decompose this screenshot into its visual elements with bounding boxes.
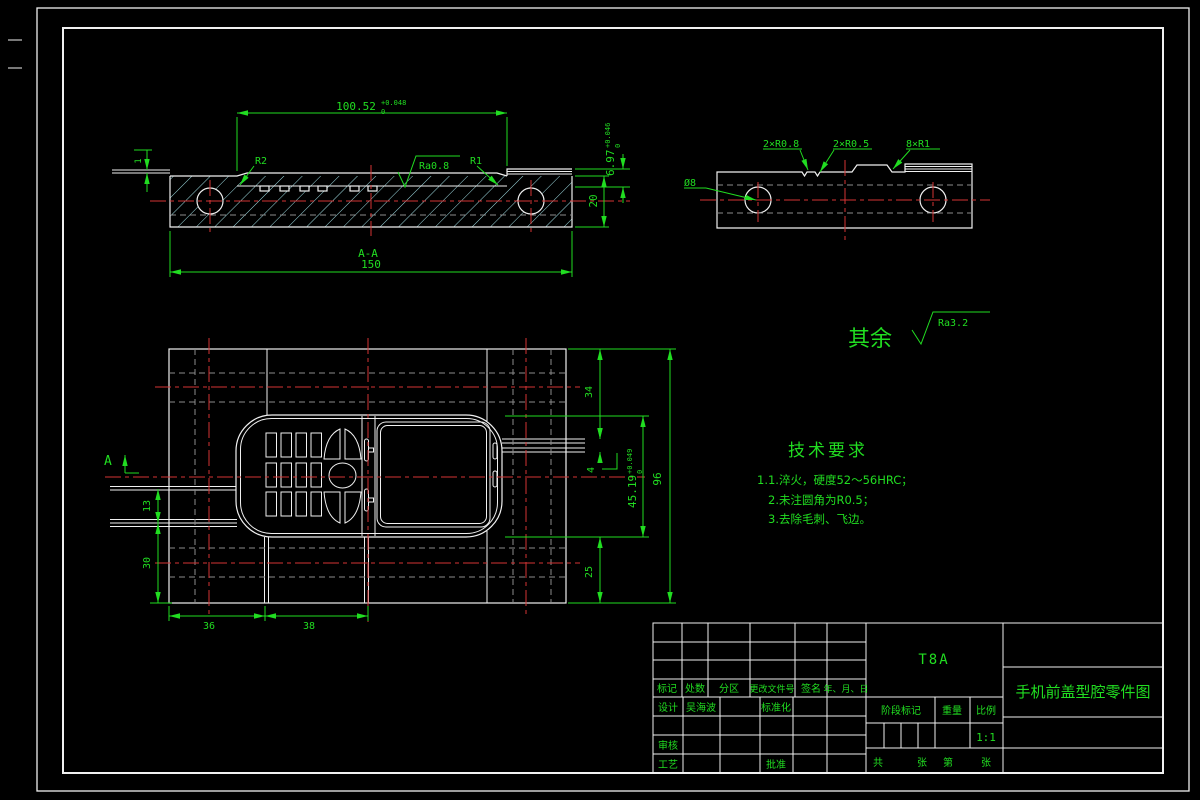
col-doc: 更改文件号 [749, 683, 794, 695]
col-mark: 标记 [657, 683, 677, 695]
margin-centering-marks [8, 40, 22, 68]
surface-note-value: Ra3.2 [938, 318, 968, 329]
approve-label: 批准 [766, 758, 786, 771]
plan-left-runners [110, 487, 237, 527]
scale-label: 比例 [976, 704, 996, 717]
side-view: Ø8 2×R0.8 2×R0.5 8×R1 [684, 139, 990, 240]
outer-border [37, 8, 1189, 791]
tech-item-1: 1.1.淬火，硬度52～56HRC； [757, 473, 913, 487]
side-ledge-lines [905, 167, 972, 172]
label-fillet-left: R2 [255, 156, 267, 167]
dim-cavity-height-tol-up: +0.049 [626, 449, 634, 474]
dim-step: 1 [134, 158, 144, 163]
tech-item-3: 3.去除毛刺、飞边。 [768, 512, 871, 526]
section-arrow-label: A [104, 454, 112, 469]
standard-label: 标准化 [761, 701, 791, 714]
review-label: 审核 [658, 739, 678, 752]
drawing-canvas: 100.52 +0.048 0 150 A-A 20 6.97 +0.046 0 [0, 0, 1200, 800]
dim-height: 20 [587, 194, 600, 207]
label-notch2: 2×R0.5 [833, 139, 869, 150]
phone-cavity [236, 415, 502, 537]
weight-label: 重量 [942, 704, 962, 717]
sheet-frame [8, 8, 1189, 791]
section-label: A-A [358, 247, 378, 260]
sheet-unit1: 张 [917, 757, 927, 769]
dim-bottom-right: 38 [303, 621, 315, 632]
dim-depth: 6.97 [604, 150, 617, 177]
process-label: 工艺 [658, 759, 678, 771]
material-value: T8A [918, 652, 949, 668]
scale-value: 1:1 [976, 731, 996, 744]
title-block-labels: 标记 处数 分区 更改文件号 签名 年、月、日 设计 吴海波 标准化 审核 工艺… [657, 652, 1151, 771]
dim-gap: 4 [586, 467, 597, 473]
dim-top-right: 34 [584, 386, 595, 398]
col-date: 年、月、日 [823, 683, 868, 695]
tech-item-2: 2.未注圆角为R0.5； [768, 493, 874, 507]
section-left-plate-lines [112, 170, 170, 173]
section-right-ledge-lines [507, 172, 572, 175]
section-view-aa: 100.52 +0.048 0 150 A-A 20 6.97 +0.046 0 [112, 99, 630, 277]
dim-bottom-left: 36 [203, 621, 215, 632]
dim-left-lower: 30 [142, 557, 153, 569]
side-labels: Ø8 2×R0.8 2×R0.5 8×R1 [684, 139, 940, 200]
sheet-total-label: 共 [873, 757, 883, 769]
tech-requirements: 技术要求 1.1.淬火，硬度52～56HRC； 2.未注圆角为R0.5； 3.去… [757, 441, 913, 526]
col-count: 处数 [685, 682, 705, 695]
designer-name: 吴海波 [686, 701, 716, 714]
dim-cavity-height: 45.19 [626, 475, 639, 508]
label-finish: Ra0.8 [419, 161, 449, 172]
col-zone: 分区 [719, 683, 739, 695]
plan-legs [265, 537, 369, 603]
stage-label: 阶段标记 [881, 704, 921, 717]
dim-cavity-width-tol-up: +0.048 [381, 99, 406, 107]
dim-cavity-width-tol-low: 0 [381, 108, 385, 116]
plan-view: A 13 30 36 38 34 4 25 [104, 338, 676, 632]
label-notch1: 2×R0.8 [763, 139, 799, 150]
title-block: 标记 处数 分区 更改文件号 签名 年、月、日 设计 吴海波 标准化 审核 工艺… [653, 623, 1163, 773]
section-arrow-a: A [104, 454, 139, 473]
col-sign: 签名 [801, 682, 821, 695]
label-hole: Ø8 [684, 177, 696, 189]
dim-total-height: 96 [651, 472, 664, 485]
dim-depth-tol-low: 0 [614, 144, 622, 148]
sheet-no-label: 第 [943, 756, 953, 769]
sheet-unit2: 张 [981, 757, 991, 769]
design-label: 设计 [658, 701, 678, 714]
dim-bottom-margin: 25 [584, 566, 595, 578]
dim-cavity-width: 100.52 [336, 100, 376, 113]
dim-depth-tol-up: +0.046 [604, 123, 612, 148]
cad-drawing-sheet: 100.52 +0.048 0 150 A-A 20 6.97 +0.046 0 [0, 0, 1200, 800]
surface-note-prefix: 其余 [848, 327, 892, 352]
tech-heading: 技术要求 [788, 441, 868, 461]
surface-note: 其余 Ra3.2 [848, 312, 990, 352]
label-rib: 8×R1 [906, 139, 930, 150]
dim-cavity-height-tol-low: 0 [636, 470, 644, 474]
drawing-title: 手机前盖型腔零件图 [1015, 683, 1150, 701]
inner-border [63, 28, 1163, 773]
dim-left-upper: 13 [142, 500, 153, 512]
plan-right-runners [502, 439, 585, 452]
label-fillet-right: R1 [470, 156, 482, 167]
